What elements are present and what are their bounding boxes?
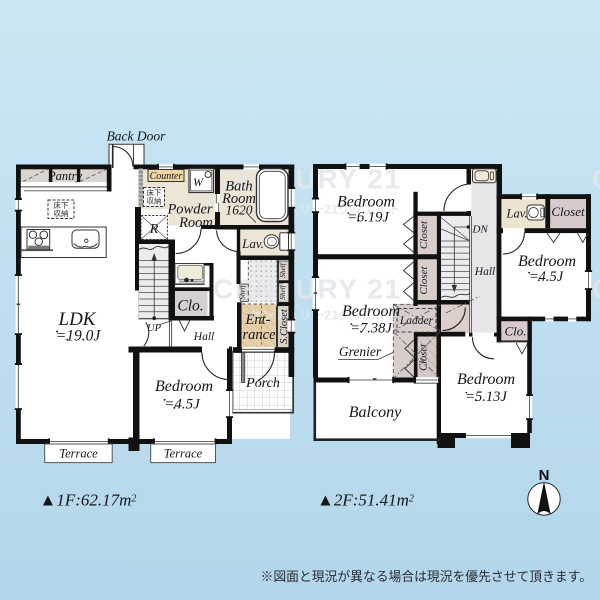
svg-text:Bedroom: Bedroom (155, 378, 213, 395)
svg-text:=4.5J: =4.5J (164, 397, 201, 413)
svg-text:Lav.: Lav. (506, 207, 528, 221)
svg-text:Shelf: Shelf (238, 284, 246, 299)
svg-text:収納: 収納 (147, 197, 162, 206)
svg-text:Shelf: Shelf (279, 262, 287, 277)
svg-text:Balcony: Balcony (349, 404, 402, 421)
svg-text:=5.13J: =5.13J (465, 389, 507, 405)
svg-text:=7.38J: =7.38J (350, 321, 392, 337)
svg-text:Counter: Counter (150, 171, 183, 182)
svg-text:Terrace: Terrace (59, 447, 98, 461)
svg-text:W: W (193, 175, 204, 189)
svg-text:R: R (149, 222, 159, 237)
svg-text:Closet: Closet (551, 204, 585, 219)
svg-text:Bedroom: Bedroom (337, 194, 395, 211)
svg-text:Clo.: Clo. (504, 324, 526, 339)
svg-text:=4.5J: =4.5J (529, 269, 564, 285)
svg-text:rance: rance (242, 327, 276, 343)
svg-text:=6.19J: =6.19J (347, 210, 389, 226)
svg-text:▲1F:62.17m2: ▲1F:62.17m2 (40, 491, 137, 510)
svg-text:Hall: Hall (193, 331, 214, 343)
svg-text:Hall: Hall (474, 266, 495, 278)
svg-text:Closet: Closet (418, 220, 430, 249)
svg-text:Grenier: Grenier (339, 344, 382, 359)
svg-text:Lav.: Lav. (241, 236, 264, 251)
svg-text:収納: 収納 (53, 208, 68, 218)
svg-text:Bedroom: Bedroom (518, 253, 576, 270)
svg-text:Room: Room (178, 215, 213, 231)
svg-text:Bedroom: Bedroom (342, 303, 400, 320)
svg-text:=19.0J: =19.0J (56, 328, 102, 345)
svg-text:Porch: Porch (245, 376, 280, 391)
svg-text:Shelf: Shelf (279, 284, 287, 299)
svg-text:CENTURY 21: CENTURY 21 (592, 164, 600, 195)
svg-text:N: N (539, 467, 550, 484)
svg-text:Closet: Closet (419, 343, 430, 371)
svg-text:Bedroom: Bedroom (457, 371, 515, 388)
svg-text:Back Door: Back Door (107, 129, 167, 144)
svg-text:CENTURY 21: CENTURY 21 (592, 274, 600, 305)
svg-text:1620: 1620 (226, 203, 253, 218)
svg-text:Closet: Closet (418, 266, 430, 295)
svg-text:DN: DN (472, 224, 489, 236)
svg-text:Terrace: Terrace (164, 447, 203, 461)
svg-text:S.Closet: S.Closet (279, 308, 290, 344)
svg-text:▲2F:51.41m2: ▲2F:51.41m2 (317, 491, 414, 510)
svg-text:Ent-: Ent- (245, 312, 271, 328)
svg-text:※図面と現況が異なる場合は現況を優先させて頂きます。: ※図面と現況が異なる場合は現況を優先させて頂きます。 (261, 569, 592, 584)
svg-text:Clo.: Clo. (177, 298, 203, 315)
svg-text:Pantry: Pantry (47, 169, 82, 183)
